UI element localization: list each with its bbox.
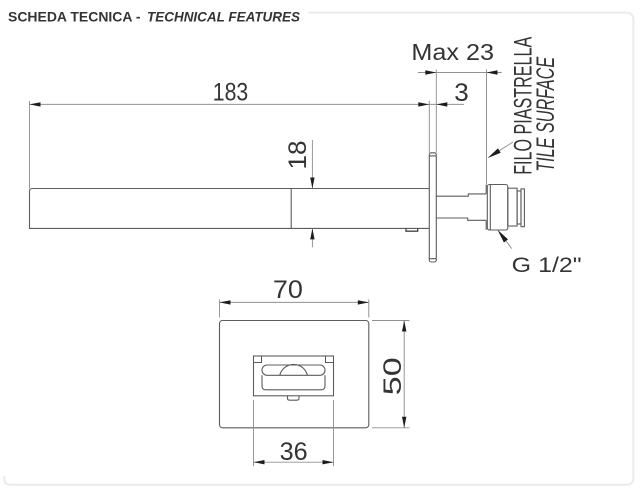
svg-text:TECHNICAL FEATURES: TECHNICAL FEATURES bbox=[147, 9, 301, 24]
svg-text:SCHEDA TECNICA -: SCHEDA TECNICA - bbox=[8, 9, 141, 24]
svg-text:Max 23: Max 23 bbox=[411, 39, 494, 65]
svg-text:3: 3 bbox=[454, 79, 469, 107]
svg-text:183: 183 bbox=[213, 79, 249, 107]
svg-text:36: 36 bbox=[280, 438, 308, 466]
svg-text:G 1/2": G 1/2" bbox=[512, 253, 582, 277]
svg-text:18: 18 bbox=[284, 141, 312, 170]
svg-text:70: 70 bbox=[273, 276, 303, 304]
svg-text:50: 50 bbox=[379, 357, 407, 395]
svg-text:TILE SURFACE: TILE SURFACE bbox=[532, 57, 560, 172]
